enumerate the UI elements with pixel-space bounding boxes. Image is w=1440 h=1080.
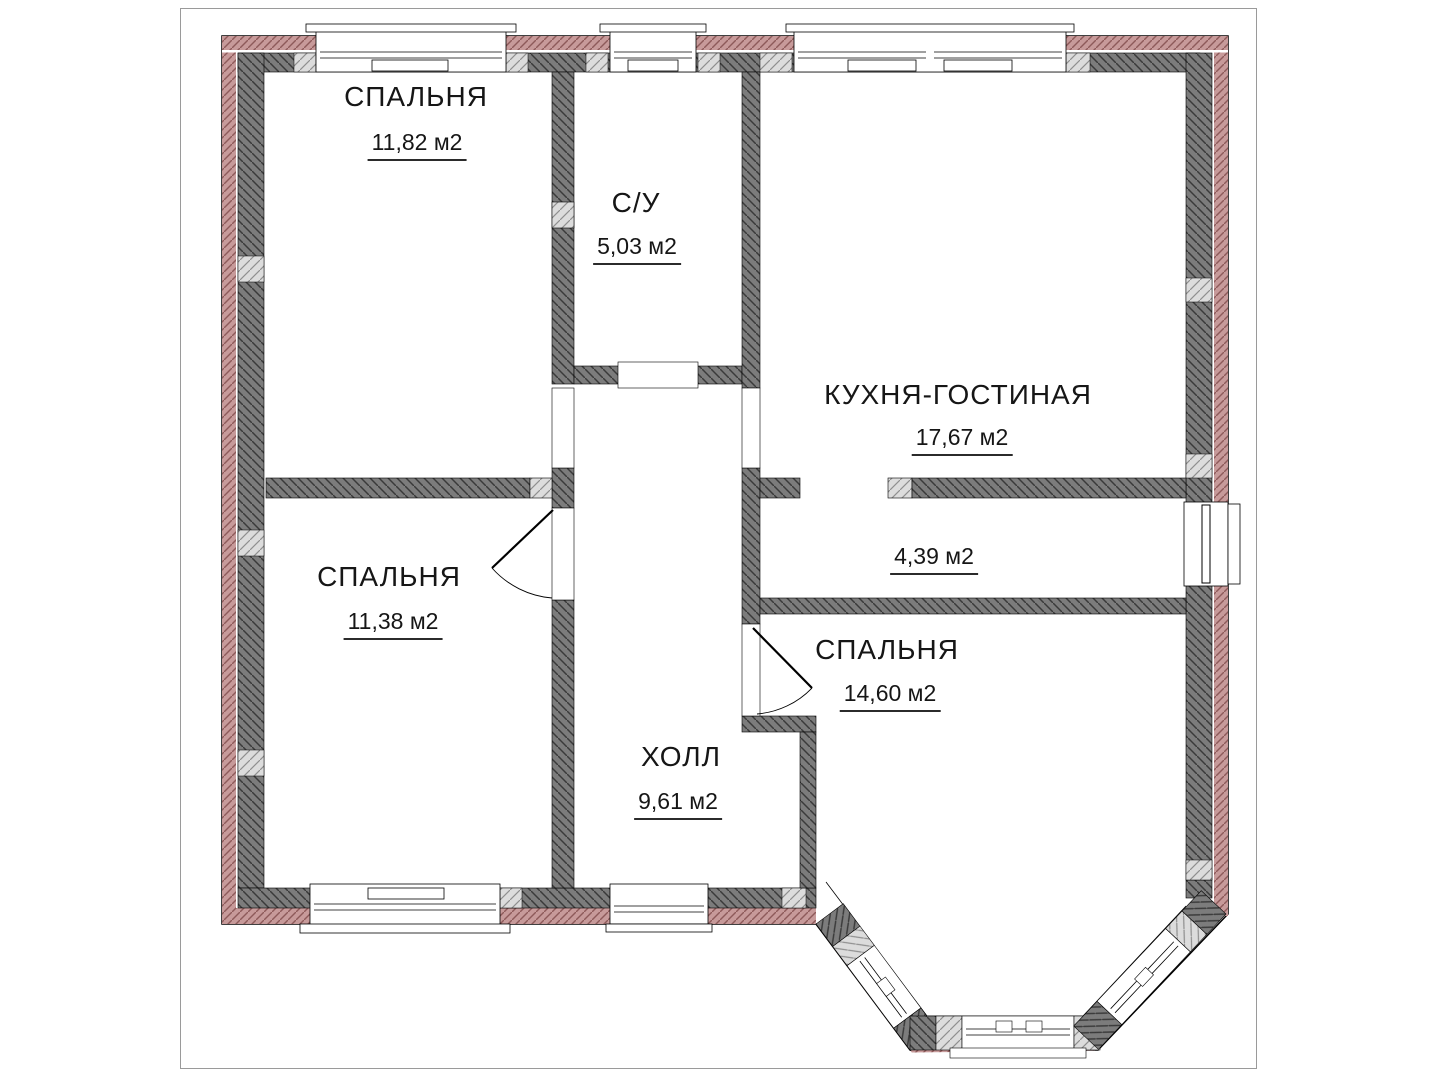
door-main-entrance [606,884,712,932]
floor-plan-canvas: СПАЛЬНЯ 11,82 м2 С/У 5,03 м2 КУХНЯ-ГОСТИ… [0,0,1440,1080]
door-opening-kitchen [742,388,760,468]
wall-kitchen-corridor-stub [760,478,800,498]
wall-bedroom1-bedroom2 [266,478,530,498]
wall-hall-right [800,732,816,888]
bay-window-sill [950,1048,1086,1058]
door-side-exit [1184,502,1240,586]
wall-hall-kitchen-upper [742,72,760,388]
window-bedroom1-top [306,24,516,72]
door-opening-bathroom [618,362,698,388]
window-bathroom-top [600,24,706,72]
wall-corridor-bedroom3 [760,598,1186,614]
door-opening-bedroom1 [552,388,574,468]
wall-bathroom-stub-left [574,366,620,384]
wall-hall-kitchen-lower [742,468,760,624]
bay-window-bottom-pane [962,1016,1074,1050]
floor-plan-drawing [0,0,1440,1080]
wall-kitchen-corridor [912,478,1186,498]
wall-bedroom2-hall [552,600,574,888]
wall-bathroom-stub-right [696,366,742,384]
window-bedroom2-bottom [300,884,510,933]
window-kitchen-top [786,24,1074,72]
wall-hall-step [742,716,816,732]
